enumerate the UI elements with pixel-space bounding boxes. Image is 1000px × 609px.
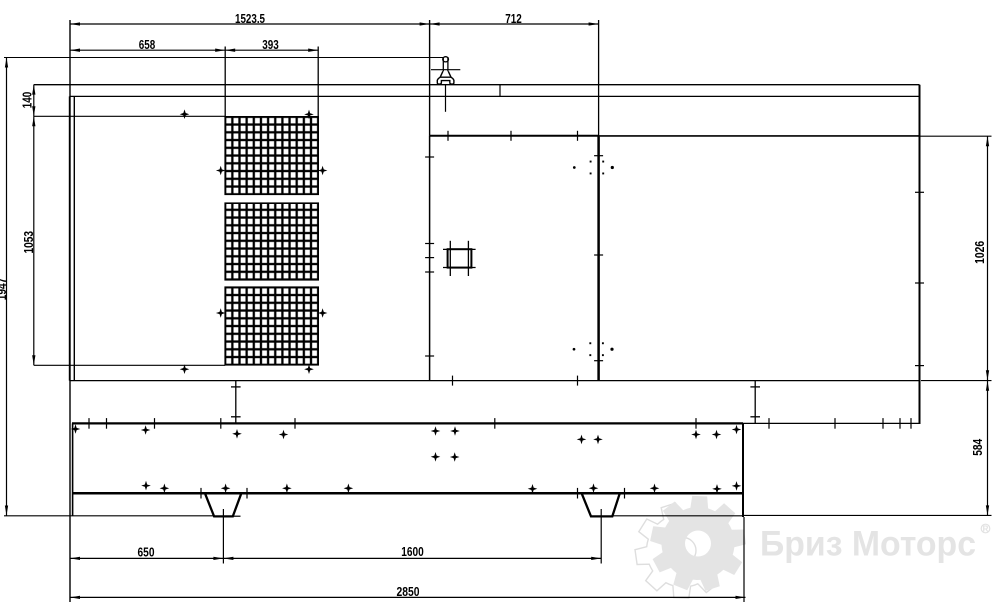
- svg-text:658: 658: [139, 37, 156, 52]
- svg-text:2850: 2850: [397, 584, 420, 599]
- svg-text:650: 650: [138, 544, 155, 559]
- svg-text:712: 712: [505, 11, 522, 26]
- svg-text:R: R: [983, 525, 989, 534]
- svg-text:1026: 1026: [973, 241, 987, 264]
- svg-text:393: 393: [262, 37, 279, 52]
- svg-text:Бриз Моторс: Бриз Моторс: [760, 525, 976, 564]
- svg-text:140: 140: [21, 92, 35, 109]
- svg-text:1053: 1053: [22, 231, 36, 254]
- svg-text:1947: 1947: [0, 278, 9, 301]
- svg-text:1523.5: 1523.5: [235, 11, 265, 26]
- svg-text:1600: 1600: [401, 544, 424, 559]
- svg-text:584: 584: [971, 439, 985, 456]
